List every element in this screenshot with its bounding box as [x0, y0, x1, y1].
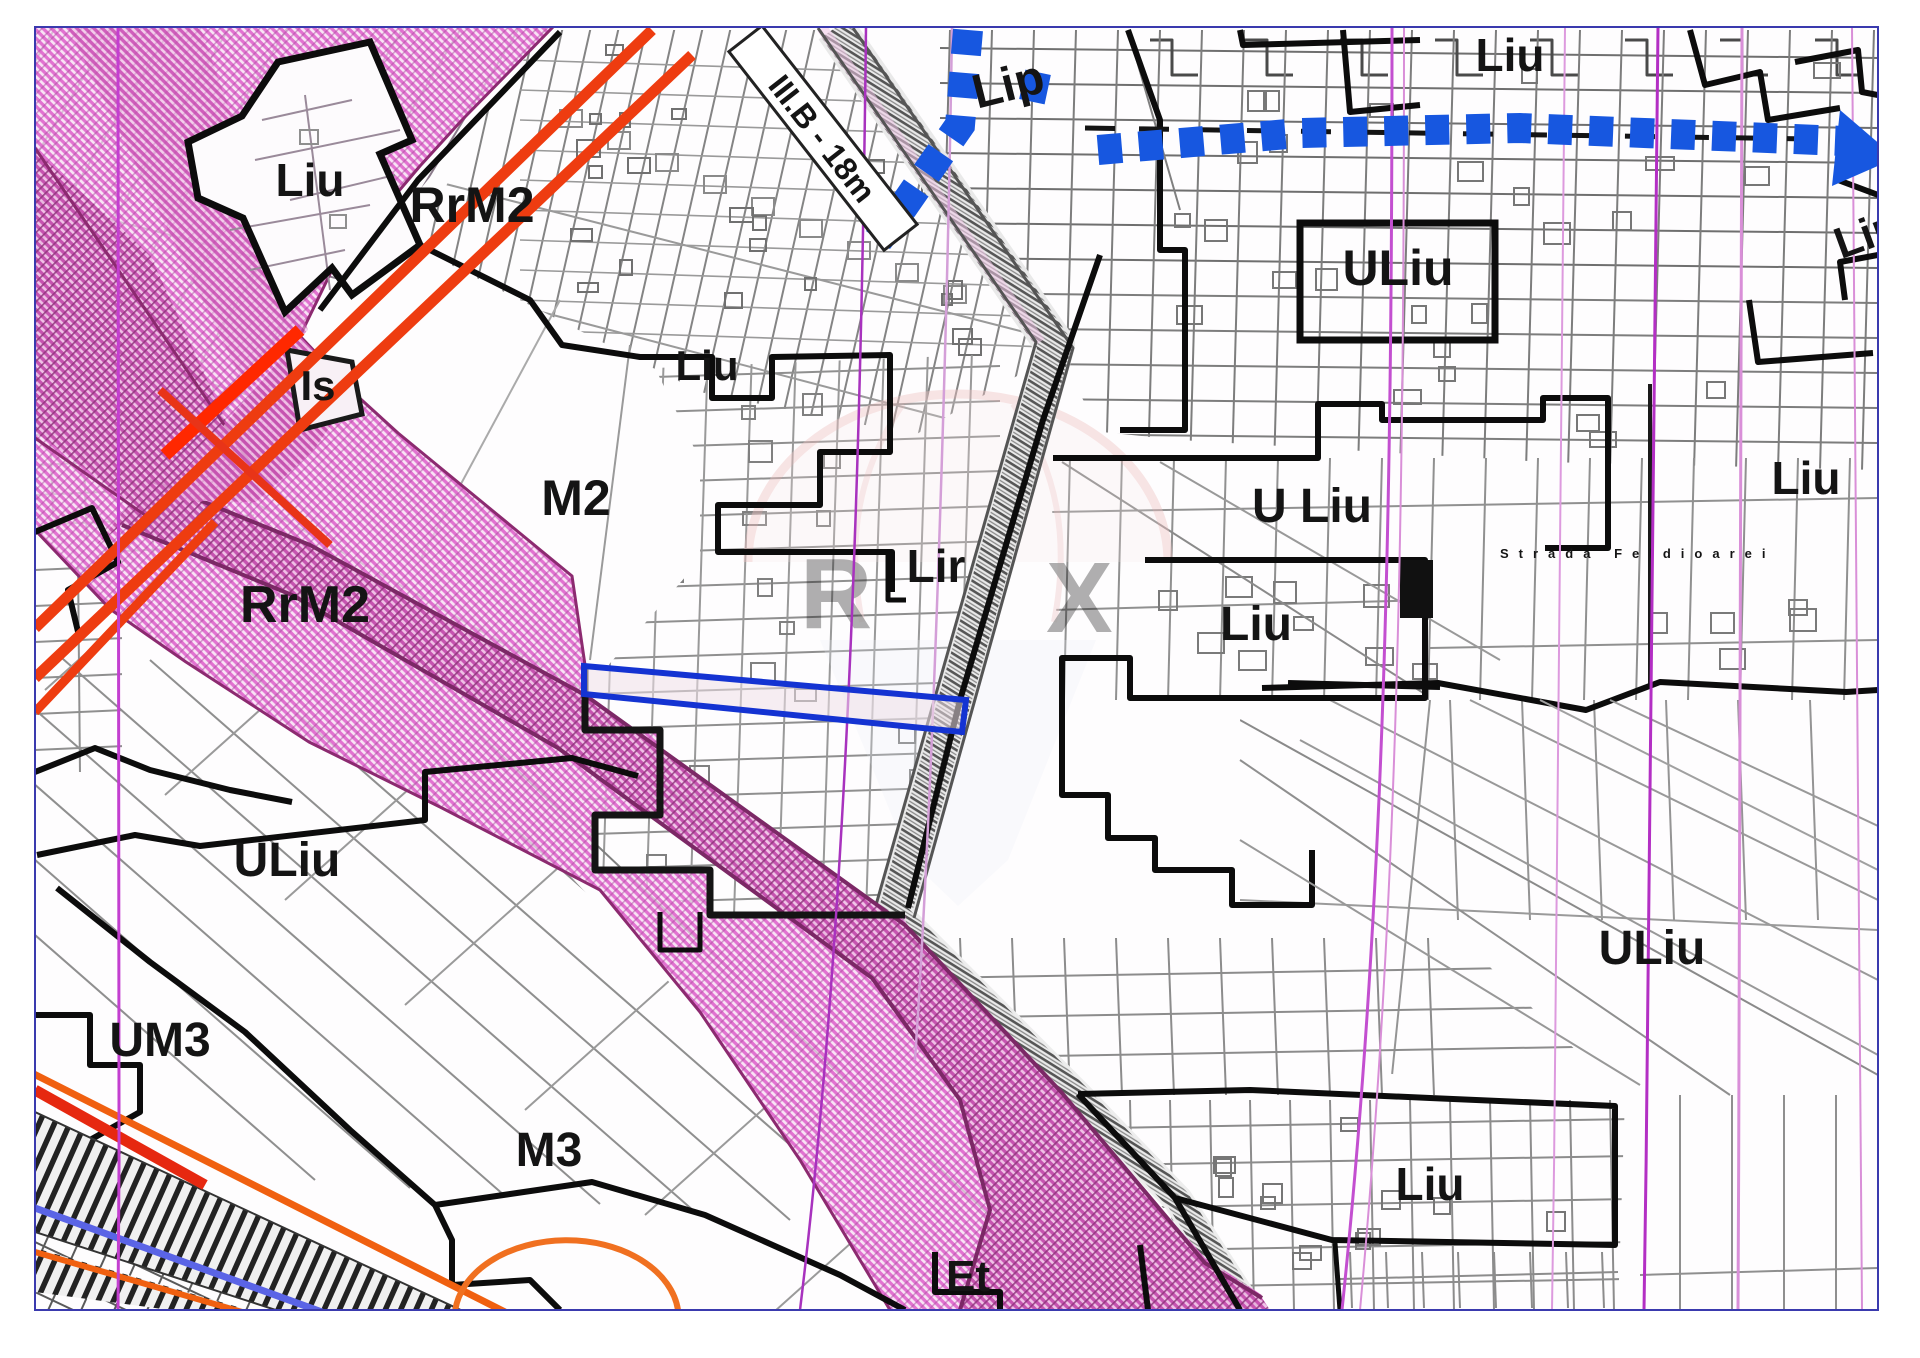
- svg-text:Strada Feldioarei: Strada Feldioarei: [1500, 546, 1775, 561]
- svg-text:Liu: Liu: [1396, 1158, 1465, 1210]
- svg-text:Lir: Lir: [907, 540, 966, 592]
- svg-text:Liu: Liu: [1772, 452, 1841, 504]
- svg-text:Liu: Liu: [1220, 598, 1292, 651]
- svg-text:Is: Is: [300, 362, 335, 409]
- svg-text:Et: Et: [946, 1252, 990, 1301]
- svg-text:Liu: Liu: [676, 342, 739, 389]
- svg-text:Liu: Liu: [276, 154, 345, 206]
- svg-text:Liu: Liu: [1476, 29, 1545, 81]
- svg-text:X: X: [1046, 542, 1113, 654]
- svg-text:ULiu: ULiu: [234, 834, 341, 887]
- svg-text:ULiu: ULiu: [1599, 922, 1706, 975]
- svg-text:M2: M2: [541, 470, 610, 526]
- svg-text:U Liu: U Liu: [1252, 480, 1372, 533]
- svg-text:RrM2: RrM2: [409, 177, 534, 233]
- svg-text:UM3: UM3: [109, 1014, 210, 1067]
- svg-text:RrM2: RrM2: [240, 576, 370, 634]
- svg-text:M3: M3: [516, 1124, 583, 1177]
- svg-text:ULiu: ULiu: [1342, 240, 1453, 296]
